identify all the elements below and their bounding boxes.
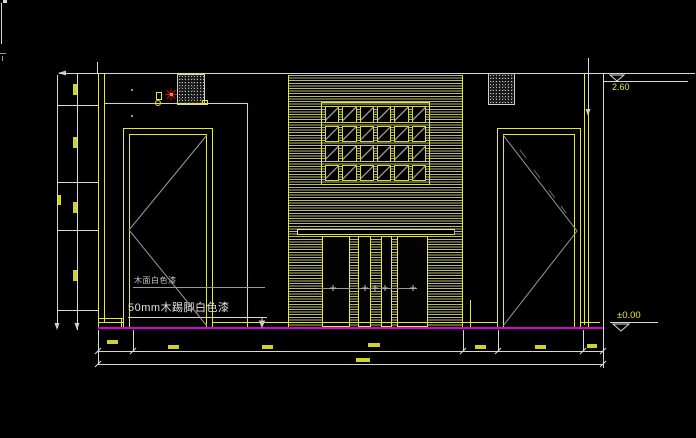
lattice-cell [412,165,426,182]
dim-label-mark [587,344,597,348]
corner-artifact-line [1,3,2,44]
skirting-line [581,322,600,323]
left-trim-vertical [247,103,248,328]
lattice-cell [325,145,339,162]
dim-label-mark [107,340,118,344]
dim-label-mark [356,358,370,362]
skirting-leader [128,317,267,318]
dim-extension-stub [583,330,584,352]
dim-label-mark [368,343,380,347]
skirting-label: 50mm木踢脚白色漆 [128,303,230,314]
lattice-cell [377,145,391,162]
lattice-cell [325,106,339,123]
left-dim-line [77,73,78,330]
right-hatch-block [488,73,515,105]
lattice-cell [394,106,408,123]
red-star-marker [165,89,177,101]
door-leaf [397,236,428,327]
level-leader-line [588,58,589,114]
corner-artifact-glyph [2,56,3,61]
shelf-bar [297,229,455,235]
lattice-cell [377,126,391,143]
lattice-cell [377,106,391,123]
right-wall-inner-line [584,73,585,325]
fixture-rect [156,92,162,100]
lattice-cell [360,106,374,123]
dim-label-mark [73,270,77,281]
skirting-line [98,318,123,319]
level-top-value: 2.60 [612,83,630,92]
lattice-cell [325,165,339,182]
lattice-cell [325,126,339,143]
dim-label-mark [262,345,273,349]
left-dim-tick [57,230,98,231]
lattice-cell [342,126,356,143]
door-leaf [358,236,371,327]
lattice-cell [412,145,426,162]
right-door-frame-inner [503,134,575,328]
ceiling-lattice-grid [321,102,430,185]
floor-line [98,327,603,329]
corner-artifact-glyph [0,53,6,54]
cad-canvas[interactable]: 木面白色漆 50mm木踢脚白色漆 2.60 ±0.00 [0,0,696,438]
corner-artifact-dots [3,0,7,3]
center-door-guide-line [318,288,417,289]
center-panel-left-edge [288,75,289,328]
lattice-cell [360,126,374,143]
wall-finish-label: 木面白色漆 [134,277,177,285]
left-door-frame-inner [129,134,207,328]
level-floor-value: ±0.00 [617,311,641,321]
lattice-cell [412,126,426,143]
door-leaf [381,236,392,327]
dim-label-mark [475,345,486,349]
level-floor-line [610,322,658,323]
bottom-dim-line-1 [98,351,603,352]
left-dim-tick [57,105,98,106]
speck [131,115,133,117]
dim-extension-stub [98,330,99,365]
dim-extension-stub [463,330,464,352]
dim-label-mark [73,137,77,148]
right-extension-line [603,73,604,368]
lattice-cell [394,165,408,182]
left-hatch-block [177,74,205,105]
lattice-cell [360,145,374,162]
left-trim-horizontal [104,103,247,104]
wall-finish-leader [133,287,265,288]
dim-label-mark [73,202,77,213]
dim-extension-stub [498,330,499,352]
lattice-cell [394,126,408,143]
skirting-line [98,322,123,323]
left-wall-inner-line [104,73,105,322]
left-dim-tick [57,182,98,183]
lattice-cell [342,106,356,123]
lattice-cell [342,165,356,182]
dim-label-mark [535,345,546,349]
lattice-cell [377,165,391,182]
right-trim-stub [470,300,471,328]
level-floor-triangle-icon [613,324,629,331]
door-leaf [322,236,350,327]
lattice-cell [360,165,374,182]
dim-label-mark [73,84,77,95]
dim-label-mark [57,195,61,205]
dim-extension-stub [133,330,134,352]
top-left-extension [97,62,98,73]
bottom-dim-line-2 [98,364,603,365]
dim-label-mark [168,345,179,349]
skirting-line [213,322,497,323]
center-panel-right-edge [462,75,463,328]
left-wall-outer-line [98,73,99,328]
speck [131,89,133,91]
lattice-cell [412,106,426,123]
lattice-cell [394,145,408,162]
lattice-cell [342,145,356,162]
left-dim-tick [57,310,98,311]
